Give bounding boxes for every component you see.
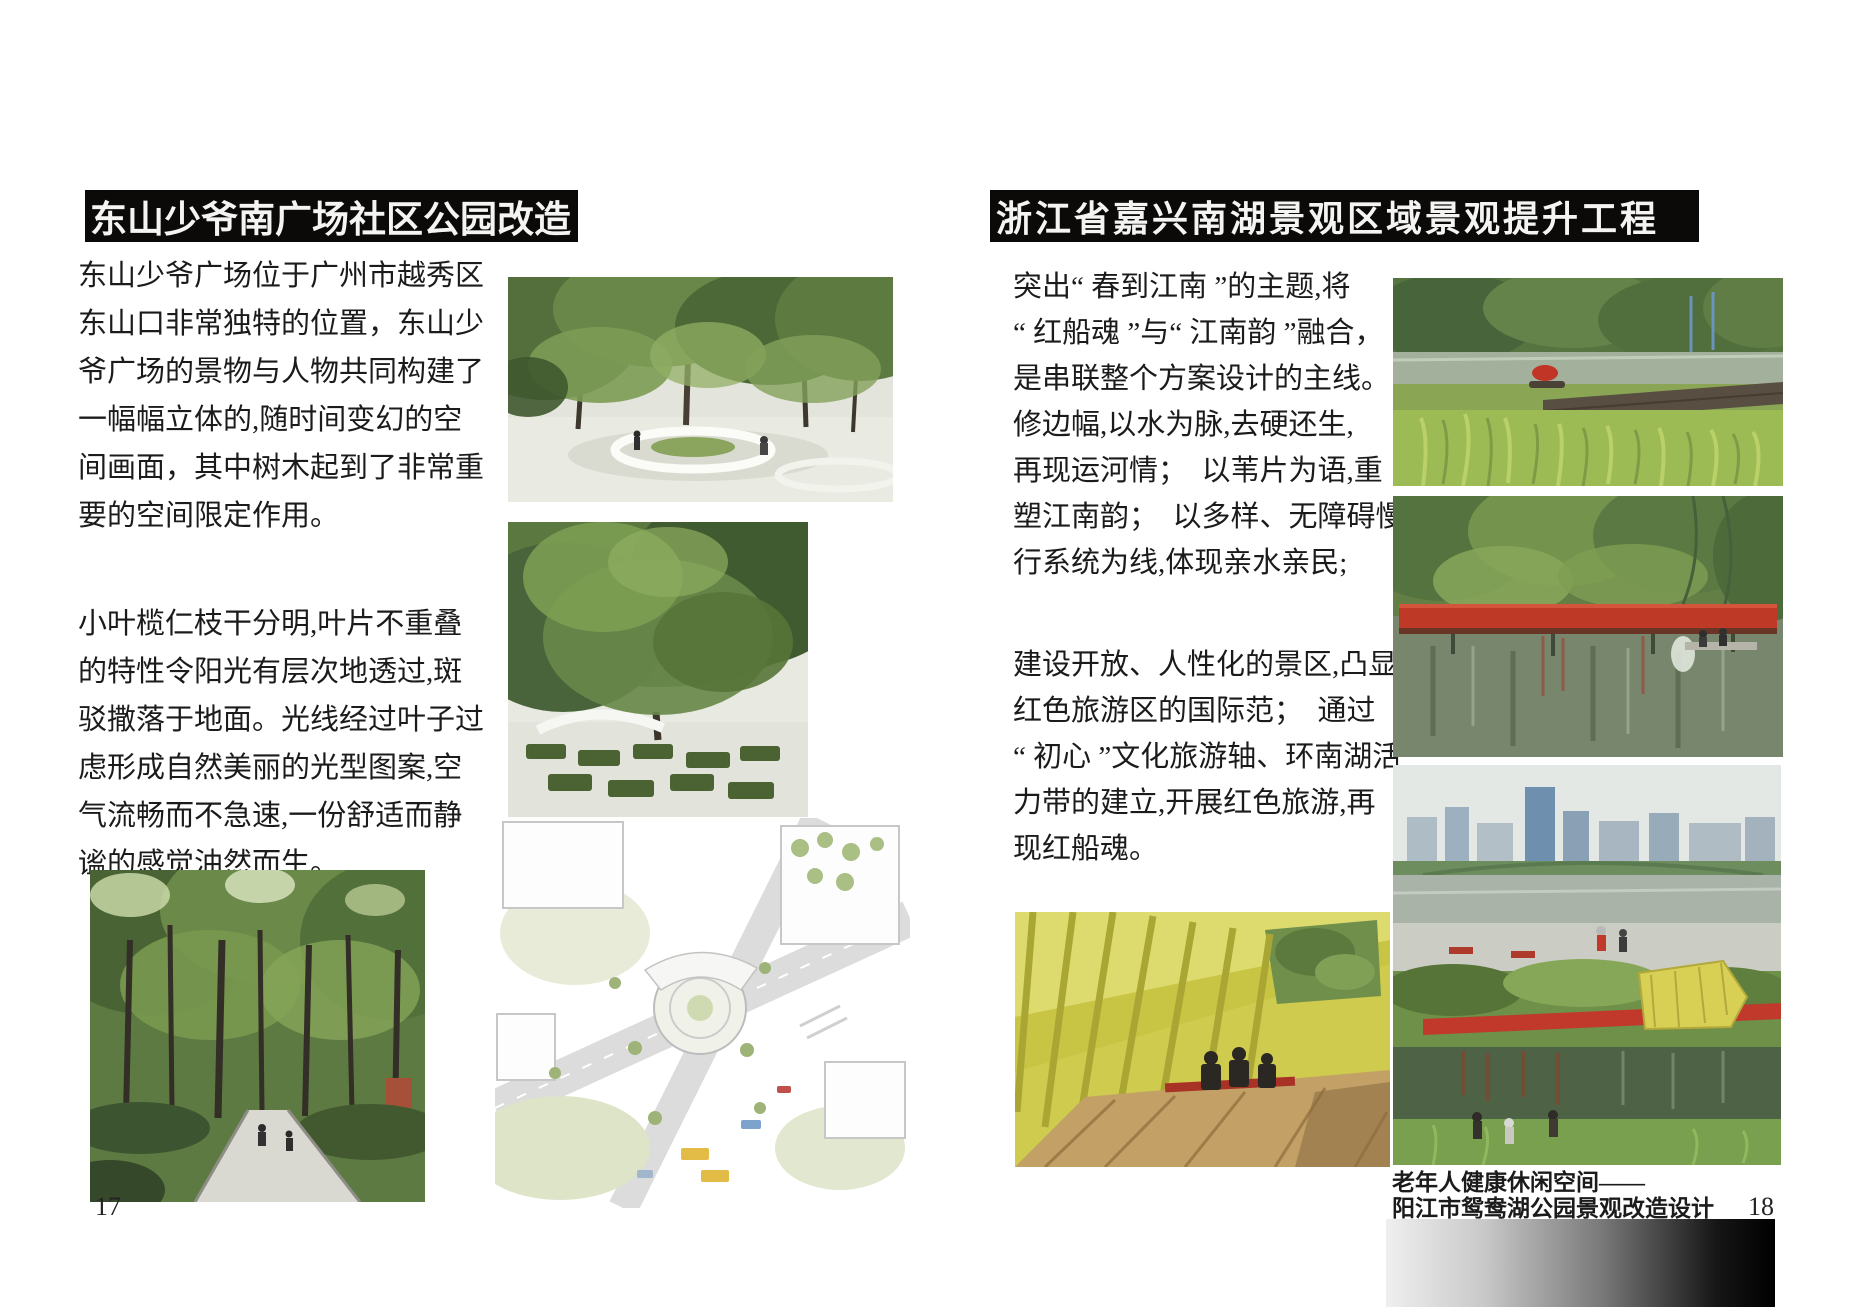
right-page-number: 18 <box>1748 1192 1774 1222</box>
left-paragraph-1: 东山少爷广场位于广州市越秀区 东山口非常独特的位置，东山少 爷广场的景物与人物共… <box>78 252 508 540</box>
left-project-title-bar: 东山少爷南广场社区公园改造 <box>85 190 578 242</box>
right-paragraph-1: 突出“ 春到江南 ”的主题,将 “ 红船魂 ”与“ 江南韵 ”融合， 是串联整个… <box>1013 264 1443 586</box>
left-project-title: 东山少爷南广场社区公园改造 <box>90 190 571 242</box>
right-paragraph-2: 建设开放、人性化的景区,凸显 红色旅游区的国际范； 通过 “ 初心 ”文化旅游轴… <box>1013 642 1443 872</box>
right-photo-caption: 老年人健康休闲空间—— 阳江市鸳鸯湖公园景观改造设计 <box>1392 1170 1714 1222</box>
photo-red-bridge-canal <box>1393 496 1783 757</box>
photo-wetland-red-umbrella <box>1393 278 1783 486</box>
footer-gradient-bar <box>1386 1219 1775 1307</box>
left-paragraph-2: 小叶榄仁枝干分明,叶片不重叠 的特性令阳光有层次地透过,斑 驳撒落于地面。光线经… <box>78 600 508 888</box>
photo-lakefront-reeds-pavilion <box>1393 765 1781 1165</box>
left-page-number: 17 <box>95 1192 121 1222</box>
book-spread: 东山少爷南广场社区公园改造 东山少爷广场位于广州市越秀区 东山口非常独特的位置，… <box>0 0 1861 1316</box>
photo-tree-canopy-plaza <box>508 522 808 817</box>
right-project-title-bar: 浙江省嘉兴南湖景观区域景观提升工程 <box>990 190 1699 242</box>
illustration-isometric-masterplan <box>495 818 910 1208</box>
photo-yellow-pavilion-interior <box>1015 912 1390 1167</box>
photo-tree-lined-walkway <box>90 870 425 1202</box>
right-project-title: 浙江省嘉兴南湖景观区域景观提升工程 <box>996 190 1659 242</box>
photo-plaza-trees-benches <box>508 277 893 502</box>
